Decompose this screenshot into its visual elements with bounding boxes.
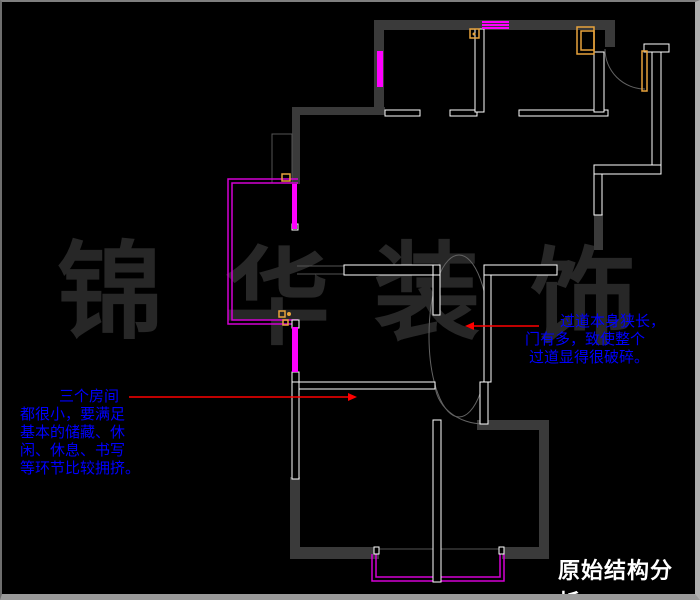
- wall-segment-white: [433, 420, 441, 582]
- wall-segment-white: [299, 382, 435, 389]
- annotation-left-line: 闲、休息、书写: [20, 442, 140, 460]
- wall-segment-white: [484, 265, 557, 275]
- annotation-left-line: 都很小，要满足: [20, 406, 140, 424]
- fixture-dot: [287, 312, 291, 316]
- wall-segment-white: [484, 275, 491, 382]
- fixture-symbol: [581, 31, 594, 50]
- annotation-left-line: 基本的储藏、休: [20, 424, 140, 442]
- drawing-title: 原始结构分析: [558, 553, 695, 600]
- annotation-right-line: 过道本身狭长，: [525, 313, 665, 331]
- wall-segment-white: [475, 29, 484, 112]
- wall-segment-white: [594, 174, 602, 215]
- fixture-symbol: [283, 320, 288, 325]
- wall-segment-dark: [594, 214, 603, 250]
- wall-segment-dark: [290, 477, 300, 557]
- annotation-left-line: 三个房间: [20, 388, 140, 406]
- wall-segment-dark: [292, 107, 300, 184]
- wall-segment-dark: [292, 107, 385, 115]
- wall-segment-white: [594, 52, 604, 112]
- wall-segment-white: [344, 265, 435, 275]
- annotation-left-line: 等环节比较拥挤。: [20, 460, 140, 478]
- leader-arrowhead: [465, 322, 474, 330]
- fixture-symbol: [282, 174, 290, 181]
- window-outline: [228, 179, 298, 324]
- wall-segment-dark: [605, 30, 615, 47]
- floor-plan-drawing: [2, 2, 700, 600]
- window-bar: [292, 327, 298, 372]
- door-swing-arc: [605, 49, 645, 89]
- annotation-left: 三个房间 都很小，要满足 基本的储藏、休 闲、休息、书写 等环节比较拥挤。: [20, 388, 140, 478]
- window-bar: [482, 21, 509, 23]
- fixture-symbol: [279, 311, 285, 317]
- wall-segment-white: [594, 165, 661, 174]
- annotation-right-line: 门有多，致使整个: [525, 331, 665, 349]
- wall-segment-white: [433, 275, 440, 315]
- window-bar: [292, 184, 297, 229]
- wall-segment-white: [480, 382, 488, 424]
- fixture-symbol: [642, 51, 647, 91]
- floor-plan-canvas: 锦 华 装 饰 三个房间 都很小，要满足 基本的储藏、休 闲、休息、书写 等环节…: [0, 0, 700, 600]
- wall-segment-white: [292, 320, 299, 328]
- wall-segment-white: [292, 372, 299, 382]
- window-bar: [482, 24, 509, 26]
- wall-segment-white: [450, 110, 477, 116]
- wall-segment-dark: [502, 547, 549, 559]
- window-bar: [377, 51, 383, 87]
- wall-segment-white: [385, 110, 420, 116]
- annotation-right-line: 过道显得很破碎。: [525, 349, 665, 367]
- wall-segment-white: [374, 547, 379, 554]
- leader-arrowhead: [348, 393, 357, 401]
- wall-segment-white: [652, 52, 661, 165]
- wall-segment-dark: [290, 547, 379, 559]
- annotation-right: 过道本身狭长， 门有多，致使整个 过道显得很破碎。: [525, 313, 665, 367]
- wall-segment-dark: [539, 420, 549, 554]
- window-bar: [482, 27, 509, 29]
- fixture-dot: [473, 33, 476, 36]
- window-outline: [232, 183, 298, 320]
- wall-segment-white: [499, 547, 504, 554]
